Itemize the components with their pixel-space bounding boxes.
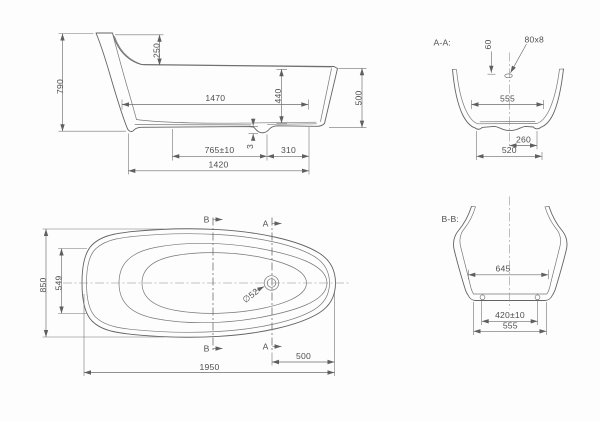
bb-foot-right [535, 295, 540, 300]
dim-label-recess-depth: 3 [245, 144, 255, 149]
section-aa-view: A-A: 60 80x8 555 260 520 [434, 35, 564, 161]
dim-label-inner-depth: 440 [273, 89, 283, 104]
section-bb-view: B-B: 645 420±10 555 [442, 197, 567, 336]
dim-label-overflow-offset: 60 [483, 40, 493, 50]
section-a-bottom-label: A [263, 342, 269, 352]
dim-label-support-front: 765±10 [205, 145, 235, 155]
dim-label-aa-drain-offset: 260 [516, 134, 531, 144]
dim-label-bb-inner-width: 645 [496, 263, 511, 273]
ext-line [272, 291, 335, 376]
section-aa-title: A-A: [434, 38, 452, 48]
plan-view: B B A A ∅52 549 850 500 1950 [38, 215, 349, 377]
aa-rim-ticks [453, 69, 564, 70]
side-shell-line-right [268, 124, 317, 125]
dim-label-backrest-drop: 250 [151, 43, 161, 58]
aa-overflow-hole [505, 74, 513, 78]
side-rim-inner-line [115, 36, 332, 67]
side-back-inner-edge [113, 34, 137, 120]
side-basin-bottom-line [137, 120, 317, 124]
dim-label-inner-length: 1470 [205, 93, 225, 103]
section-b-top-label: B [204, 215, 210, 225]
bb-foot-left [480, 295, 485, 300]
dim-label-overall-height: 790 [55, 79, 65, 94]
dim-label-bb-base-width: 555 [503, 320, 518, 330]
section-a-top-label: A [263, 219, 269, 229]
bb-inner-wall [460, 207, 561, 294]
side-tub-outline [96, 33, 338, 133]
section-bb-title: B-B: [442, 214, 460, 224]
drain-diameter-label: ∅52 [240, 286, 260, 305]
dim-label-plan-overall-width: 850 [38, 278, 48, 293]
side-elevation-view: 790 250 1470 440 500 765±10 310 3 1420 [55, 33, 367, 175]
dim-label-overflow-slot: 80x8 [525, 35, 544, 45]
dim-label-aa-inner-width: 555 [500, 93, 515, 103]
dim-label-aa-base-width: 520 [502, 145, 517, 155]
dim-label-support-rear: 310 [281, 145, 296, 155]
bathtub-drawing: 790 250 1470 440 500 765±10 310 3 1420 [0, 0, 600, 421]
technical-drawing-sheet: 790 250 1470 440 500 765±10 310 3 1420 [0, 0, 600, 421]
dim-label-plan-overall-length: 1950 [200, 362, 220, 372]
dim-label-bb-support-span: 420±10 [495, 310, 525, 320]
dim-label-foot-end-height: 500 [353, 91, 363, 106]
leader-line [511, 44, 527, 73]
dim-label-drain-to-end: 500 [296, 351, 311, 361]
section-b-bottom-label: B [204, 344, 210, 354]
dim-label-base-length: 1420 [209, 160, 229, 170]
dim-label-plan-inner-width: 549 [54, 276, 64, 291]
side-right-inner-wall [321, 69, 332, 122]
ext-line [59, 34, 127, 132]
